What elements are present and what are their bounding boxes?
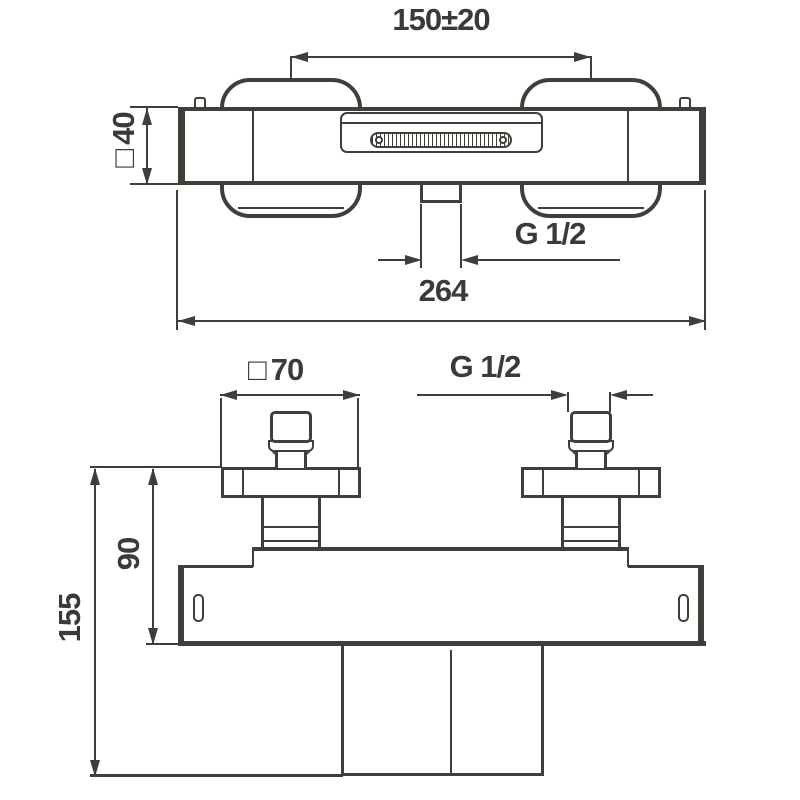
dim-handle-square-line bbox=[220, 394, 360, 396]
dim-inlet-thread-label: G 1/2 bbox=[438, 349, 532, 385]
dim-outlet-tail-right bbox=[477, 259, 620, 261]
spout-grille bbox=[370, 132, 512, 148]
bar-end-cap-left bbox=[178, 107, 185, 185]
dim-handle-square-arrow-left bbox=[220, 390, 237, 400]
bar-end-cap-right bbox=[699, 107, 706, 185]
dim-inlet-tail-left bbox=[417, 394, 553, 396]
spout-recess-lip bbox=[342, 122, 541, 124]
flange-right-line-2 bbox=[638, 470, 640, 495]
square-symbol: □ bbox=[248, 352, 266, 388]
dim-body-height-line bbox=[152, 469, 154, 645]
knob-left bbox=[270, 411, 312, 443]
dim-handle-square-arrow-right bbox=[343, 390, 360, 400]
dim-overall-height-arrow-down bbox=[90, 760, 100, 777]
dim-overall-width-arrow-right bbox=[689, 316, 706, 326]
ext-line-block-bottom bbox=[90, 774, 343, 777]
dim-handle-spacing-arrow-left bbox=[291, 52, 308, 62]
dim-handle-spacing-line bbox=[291, 56, 591, 58]
dim-body-height-label: 90 bbox=[111, 529, 147, 579]
spout-grille-end-right bbox=[499, 136, 507, 144]
mount-nut-left bbox=[194, 97, 206, 107]
dim-body-height-value: 90 bbox=[111, 538, 146, 570]
dim-outlet-arrow-left bbox=[405, 255, 422, 265]
dim-overall-width-label: 264 bbox=[398, 273, 488, 309]
dim-outlet-arrow-right bbox=[461, 255, 478, 265]
bar-seam-right bbox=[627, 109, 629, 183]
dim-body-height-arrow-down bbox=[148, 628, 158, 645]
housing-line-right-1 bbox=[561, 526, 621, 528]
bar-seam-left bbox=[252, 109, 254, 183]
dim-overall-height-arrow-up bbox=[90, 468, 100, 485]
dim-handle-square-value: 70 bbox=[271, 352, 303, 387]
dim-body-square-arrow-down bbox=[142, 168, 152, 185]
lower-block-seam bbox=[450, 650, 452, 775]
ear-slot-right bbox=[678, 594, 689, 622]
dim-overall-height-value: 155 bbox=[52, 594, 87, 643]
dim-overall-width-line bbox=[178, 320, 706, 322]
dim-handle-square-ext-left bbox=[220, 398, 222, 467]
housing-line-right-2 bbox=[561, 540, 621, 542]
flange-left-line-1 bbox=[242, 470, 244, 495]
knob-right bbox=[570, 411, 612, 443]
dim-overall-width-value: 264 bbox=[419, 273, 468, 308]
ear-slot-left bbox=[193, 594, 204, 622]
dim-overall-width-arrow-left bbox=[178, 316, 195, 326]
dim-inlet-tail-right bbox=[627, 394, 653, 396]
dim-handle-spacing-arrow-right bbox=[574, 52, 591, 62]
dim-handle-square-ext-right bbox=[357, 398, 359, 467]
dim-outlet-thread-value: G 1/2 bbox=[515, 216, 586, 251]
dim-overall-height-line bbox=[94, 469, 96, 777]
technical-drawing-faucet: 150±20 □40 G 1/2 264 bbox=[0, 0, 800, 800]
wall-ear-left bbox=[178, 565, 254, 645]
handle-left-inner-line bbox=[238, 207, 344, 209]
dim-inlet-thread-value: G 1/2 bbox=[450, 349, 521, 384]
dim-outlet-tail-left bbox=[378, 259, 408, 261]
flange-right-line-1 bbox=[542, 470, 544, 495]
dim-body-height-arrow-up bbox=[148, 468, 158, 485]
dim-body-square-arrow-up bbox=[142, 108, 152, 125]
dim-handle-square-label: □70 bbox=[248, 352, 303, 388]
body-step-left bbox=[252, 547, 254, 567]
shower-outlet-nub bbox=[420, 185, 462, 203]
body-bottom-edge bbox=[178, 641, 706, 646]
housing-line-left-2 bbox=[261, 540, 321, 542]
mixer-body bbox=[253, 547, 628, 645]
body-step-right bbox=[627, 547, 629, 567]
knob-neck-left bbox=[275, 451, 307, 468]
dim-handle-spacing-value: 150±20 bbox=[392, 2, 489, 37]
dim-overall-width-ext-right bbox=[704, 190, 706, 330]
square-symbol: □ bbox=[106, 150, 142, 168]
dim-overall-height-label: 155 bbox=[52, 583, 88, 653]
dim-body-square-value: 40 bbox=[106, 112, 141, 144]
dim-handle-spacing-label: 150±20 bbox=[366, 2, 516, 38]
lower-block bbox=[341, 645, 544, 776]
dim-inlet-arrow-right bbox=[610, 390, 627, 400]
spout-grille-end-left bbox=[375, 136, 383, 144]
flange-left-line-2 bbox=[338, 470, 340, 495]
dim-body-square-label: □40 bbox=[106, 95, 142, 185]
knob-neck-right bbox=[575, 451, 607, 468]
mount-nut-right bbox=[679, 97, 691, 107]
dim-overall-width-ext-left bbox=[176, 190, 178, 330]
dim-outlet-thread-label: G 1/2 bbox=[503, 216, 597, 252]
handle-right-inner-line bbox=[538, 207, 644, 209]
dim-inlet-arrow-left bbox=[551, 390, 568, 400]
wall-ear-right bbox=[628, 565, 704, 645]
housing-line-left-1 bbox=[261, 526, 321, 528]
